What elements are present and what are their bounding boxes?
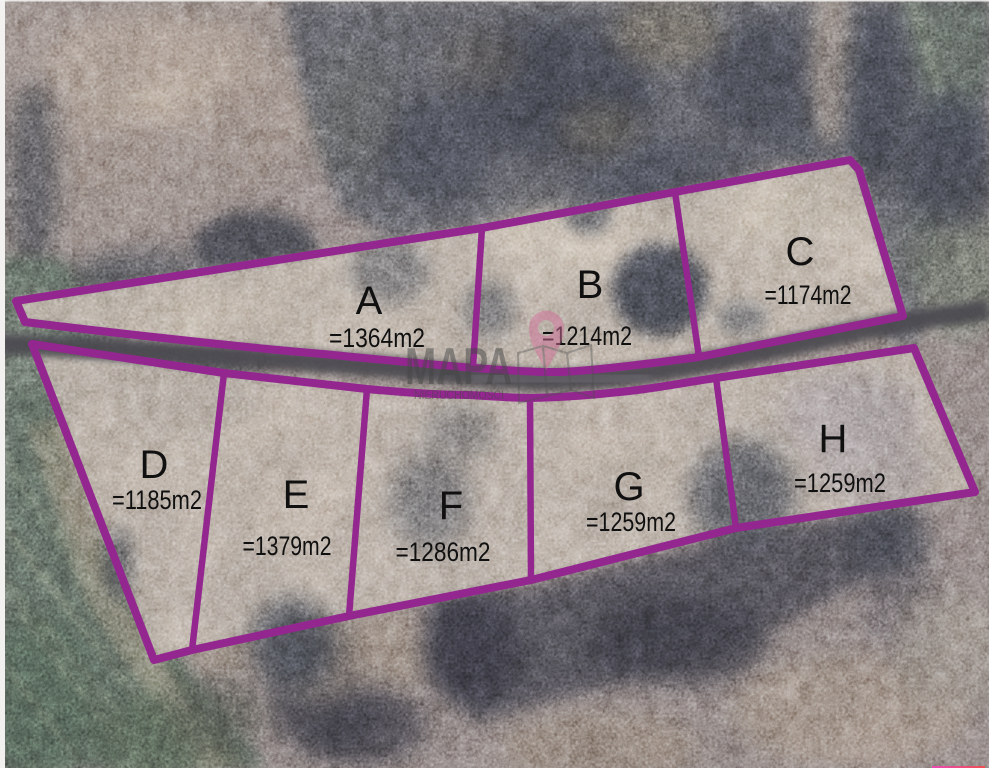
- svg-text:A: A: [356, 279, 383, 323]
- svg-text:E: E: [283, 473, 310, 517]
- svg-text:F: F: [439, 484, 463, 528]
- svg-text:=1259m2: =1259m2: [794, 468, 886, 498]
- svg-text:=1185m2: =1185m2: [112, 485, 202, 515]
- svg-text:MAPA: MAPA: [405, 337, 512, 396]
- svg-text:D: D: [140, 443, 169, 487]
- svg-text:=1379m2: =1379m2: [243, 531, 332, 561]
- svg-text:B: B: [577, 263, 604, 307]
- svg-text:G: G: [613, 465, 644, 509]
- svg-text:=1259m2: =1259m2: [586, 507, 676, 537]
- svg-text:C: C: [786, 230, 815, 274]
- svg-text:=1174m2: =1174m2: [765, 280, 852, 310]
- svg-text:H: H: [819, 417, 848, 461]
- svg-text:=1286m2: =1286m2: [396, 537, 491, 567]
- svg-text:NIERUCHOMOŚCI: NIERUCHOMOŚCI: [414, 389, 504, 402]
